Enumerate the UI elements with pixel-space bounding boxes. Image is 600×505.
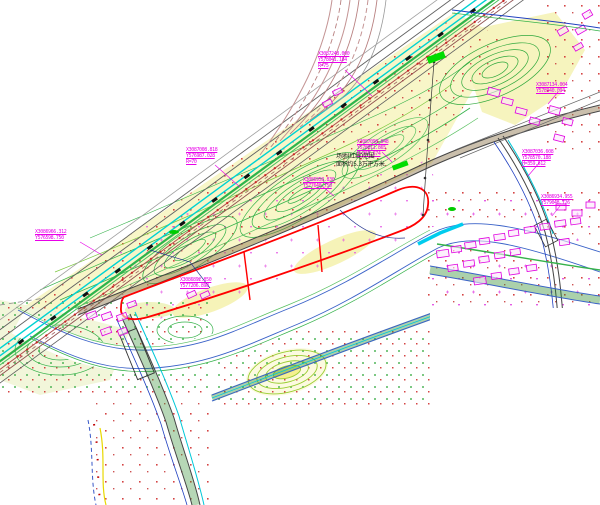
site-note-line: 场地(红线)范围 [336,153,385,161]
site-note: 场地(红线)范围 面积约5.3万平方米 [336,153,385,168]
coordinate-label-1: X3087008.818 Y576987.028 R=70 [186,147,217,165]
map-canvas[interactable]: X3087248.000 Y578041.184 R=75 X3087008.8… [0,0,600,505]
site-plan-drawing [0,0,600,505]
coordinate-label-6: X3086892.850 Y577206.898 [180,277,211,289]
coordinate-label-8: X3087134.004 Y578940.094 [536,82,567,94]
label-line: Y579048.726 [541,200,572,206]
label-line: Y576598.750 [35,235,66,241]
label-line: Y578940.094 [536,88,567,94]
coordinate-label-5: X3086934.955 Y579048.726 [541,194,572,206]
coordinate-label-7: X3086958.830 Y577640.750 [303,177,334,189]
coordinate-label-4: X3087036.608 Y578570.188 H=359.612 [522,149,553,167]
label-line: Y577640.750 [303,183,334,189]
label-line: Y577206.898 [180,283,211,289]
label-line: R=75 [318,63,349,69]
site-note-line: 面积约5.3万平方米 [336,161,385,169]
coordinate-label-0: X3087248.000 Y578041.184 R=75 [318,51,349,69]
label-line: H=359.612 [522,161,553,167]
coordinate-label-2: X3086966.312 Y576598.750 [35,229,66,241]
label-line: R=70 [186,159,217,165]
